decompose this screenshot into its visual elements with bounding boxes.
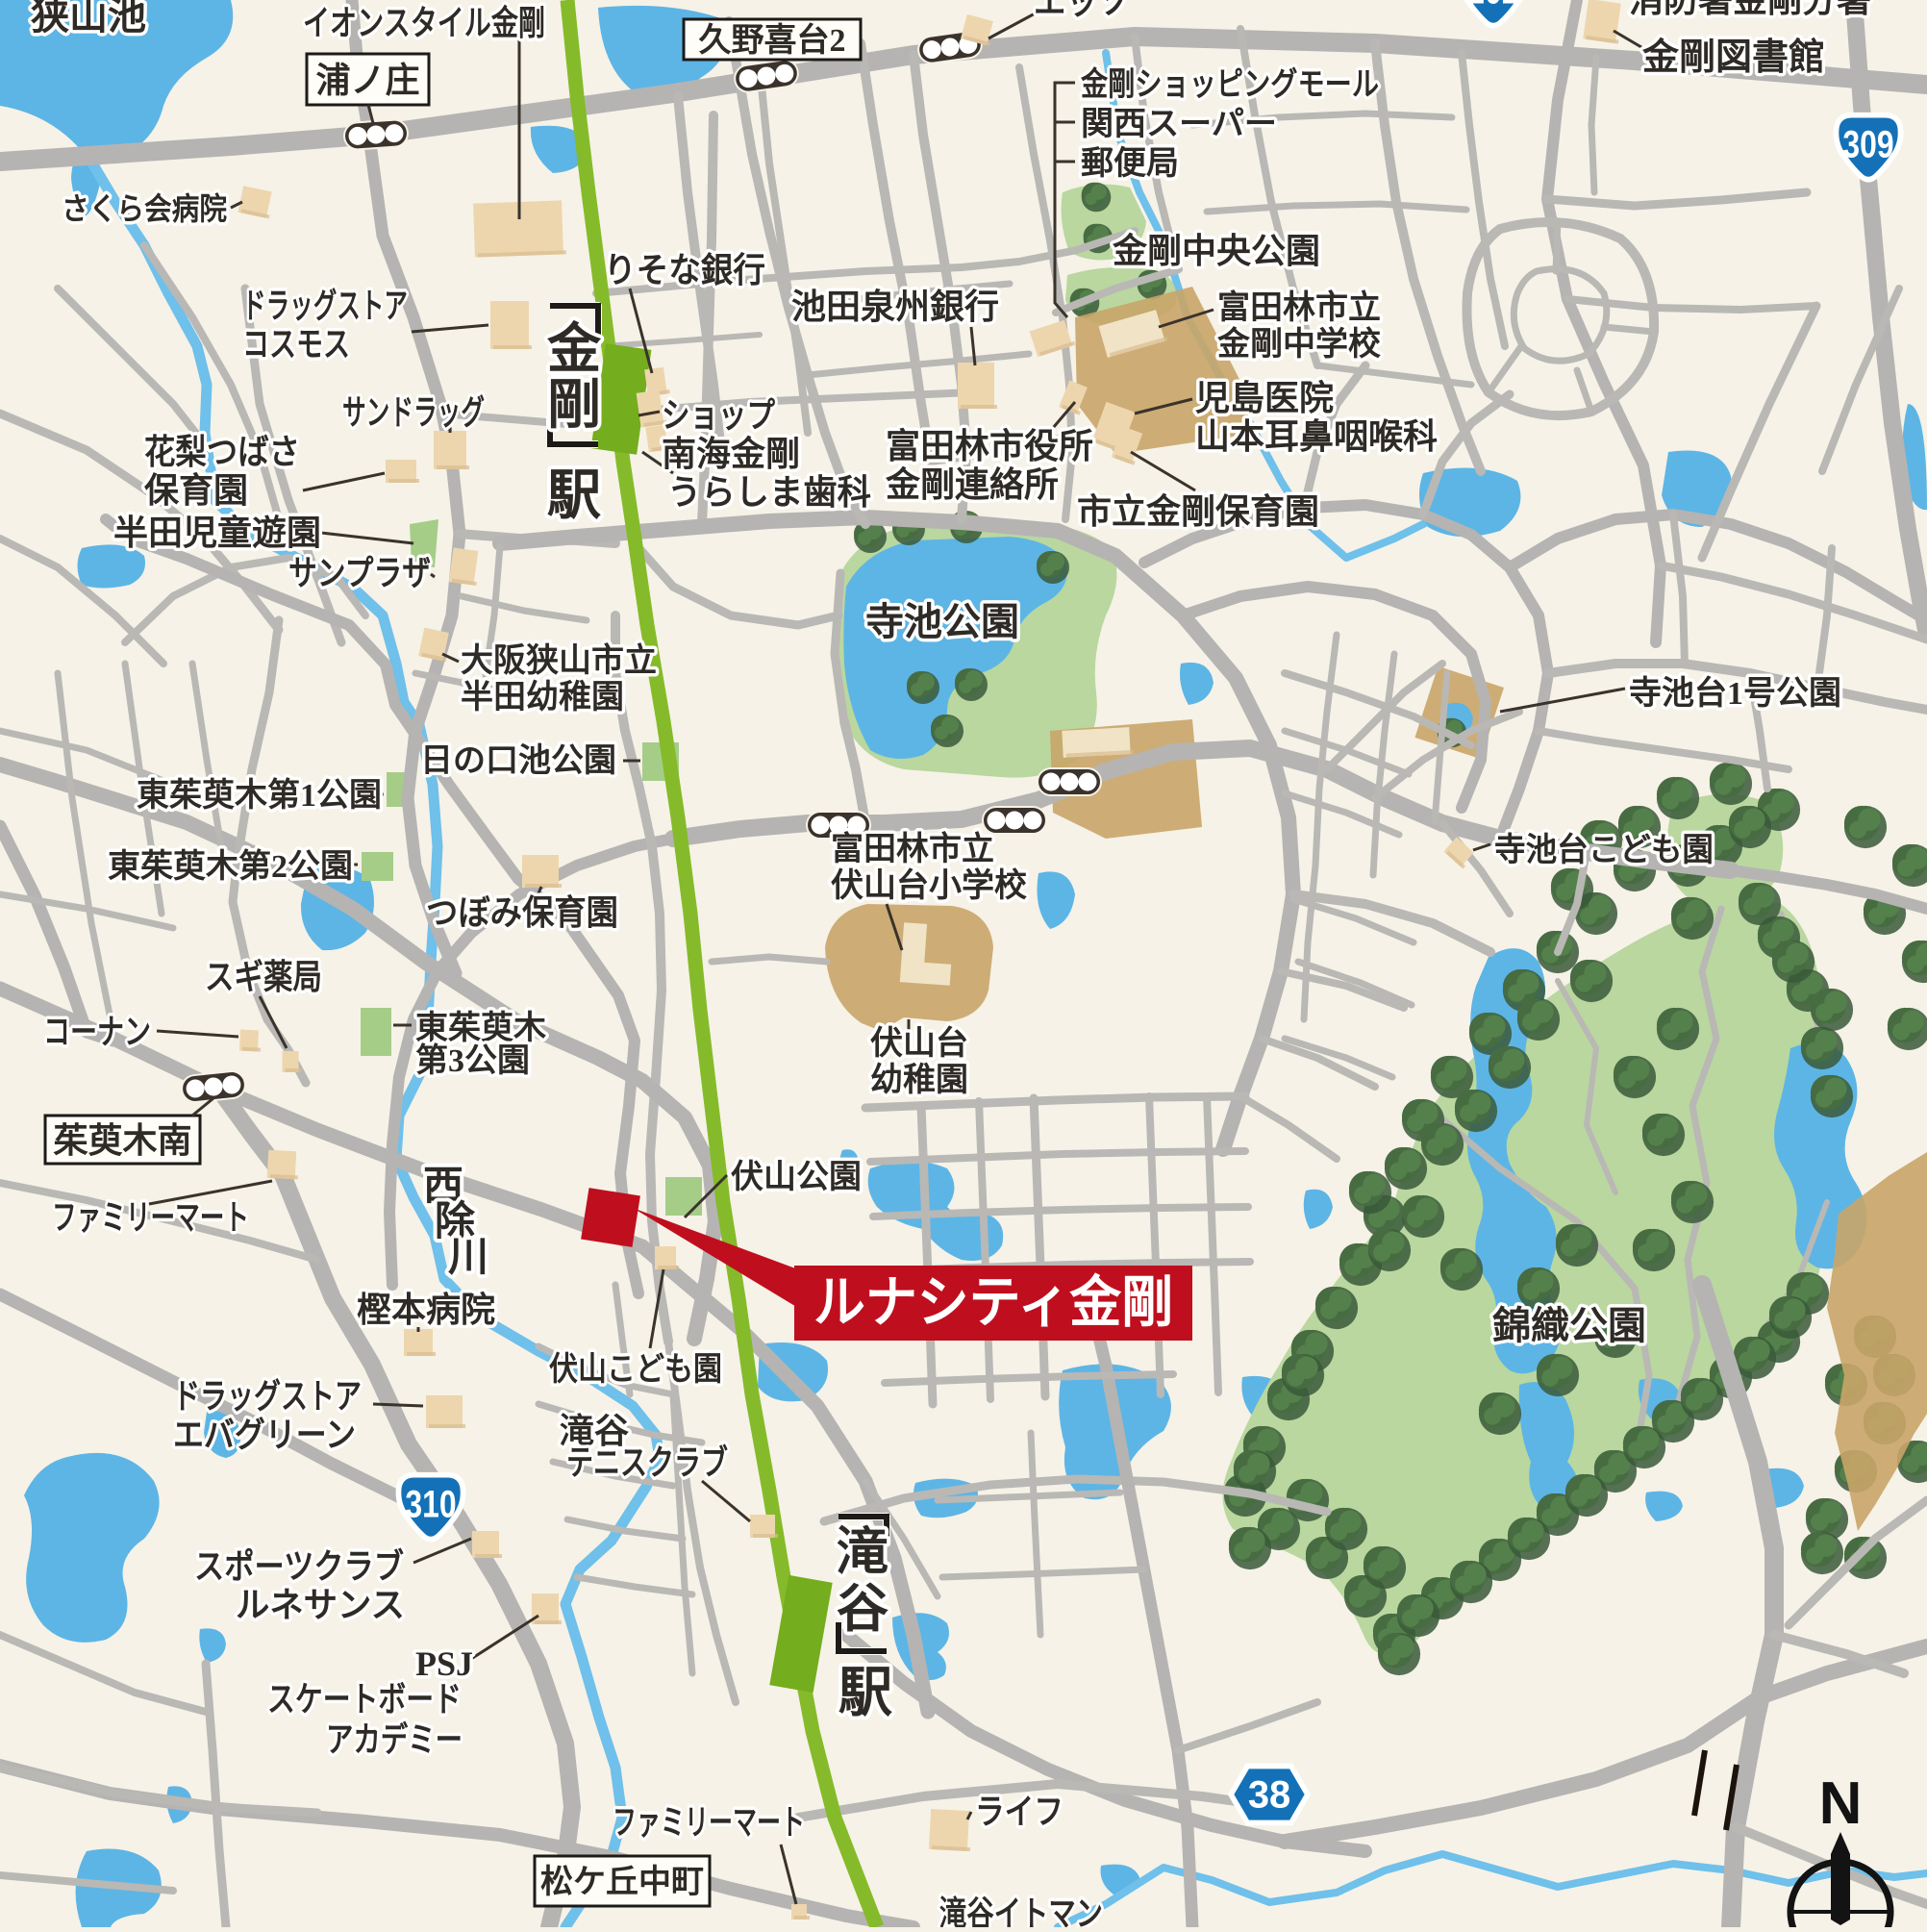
- svg-text:309: 309: [1842, 123, 1893, 165]
- svg-text:大阪狭山市立: 大阪狭山市立: [461, 641, 657, 679]
- svg-text:202: 202: [1467, 0, 1518, 12]
- svg-text:富田林市立: 富田林市立: [1217, 289, 1381, 326]
- svg-text:駅: 駅: [547, 466, 601, 526]
- svg-text:スポーツクラブ: スポーツクラブ: [194, 1546, 404, 1586]
- svg-text:伏山こども園: 伏山こども園: [549, 1351, 722, 1388]
- svg-text:錦織公園: 錦織公園: [1492, 1304, 1646, 1347]
- svg-text:金剛中央公園: 金剛中央公園: [1112, 231, 1320, 270]
- svg-text:伏山台小学校: 伏山台小学校: [831, 866, 1027, 904]
- svg-text:伏山台: 伏山台: [870, 1025, 968, 1062]
- svg-text:谷: 谷: [837, 1580, 888, 1638]
- svg-text:児島医院: 児島医院: [1195, 379, 1334, 417]
- svg-text:第3公園: 第3公園: [415, 1042, 530, 1079]
- svg-text:りそな銀行: りそな銀行: [604, 251, 765, 289]
- svg-text:樫本病院: 樫本病院: [357, 1291, 495, 1329]
- svg-text:茱萸木南: 茱萸木南: [53, 1121, 191, 1160]
- svg-text:久野喜台2: 久野喜台2: [699, 22, 846, 59]
- svg-text:テニスクラブ: テニスクラブ: [566, 1443, 728, 1482]
- svg-text:金: 金: [546, 320, 602, 380]
- svg-text:浦ノ庄: 浦ノ庄: [315, 61, 419, 99]
- svg-text:金剛図書館: 金剛図書館: [1641, 37, 1825, 78]
- svg-text:寺池公園: 寺池公園: [865, 600, 1019, 643]
- svg-text:花梨つばさ: 花梨つばさ: [144, 433, 300, 471]
- svg-text:コーナン: コーナン: [43, 1013, 151, 1051]
- svg-text:ドラッグストア: ドラッグストア: [242, 287, 408, 325]
- svg-text:エバグリーン: エバグリーン: [173, 1416, 356, 1454]
- svg-text:38: 38: [1248, 1773, 1290, 1816]
- svg-text:金剛ショッピングモール: 金剛ショッピングモール: [1080, 65, 1379, 103]
- svg-text:イオンスタイル金剛: イオンスタイル金剛: [303, 3, 545, 42]
- svg-text:サンドラッグ: サンドラッグ: [342, 393, 485, 432]
- svg-text:金剛連絡所: 金剛連絡所: [885, 464, 1059, 504]
- svg-text:駅: 駅: [838, 1664, 892, 1723]
- svg-text:滝: 滝: [837, 1523, 888, 1581]
- svg-text:N: N: [1819, 1770, 1863, 1837]
- svg-text:関西スーパー: 関西スーパー: [1081, 107, 1277, 142]
- svg-text:狭山池: 狭山池: [31, 0, 146, 38]
- svg-text:保育園: 保育園: [144, 471, 248, 510]
- svg-text:東茱萸木第1公園: 東茱萸木第1公園: [137, 777, 382, 814]
- svg-text:市立金剛保育園: 市立金剛保育園: [1077, 491, 1319, 531]
- svg-text:ライフ: ライフ: [975, 1793, 1064, 1831]
- svg-text:ファミリーマート: ファミリーマート: [52, 1198, 249, 1237]
- svg-text:寺池台こども園: 寺池台こども園: [1494, 832, 1714, 868]
- svg-text:松ケ丘中町: 松ケ丘中町: [540, 1864, 704, 1900]
- svg-text:消防署金剛分署: 消防署金剛分署: [1629, 0, 1871, 19]
- svg-text:310: 310: [405, 1483, 456, 1525]
- svg-text:寺池台1号公園: 寺池台1号公園: [1629, 675, 1841, 712]
- svg-text:ファミリーマート: ファミリーマート: [613, 1803, 805, 1842]
- svg-text:コスモス: コスモス: [242, 325, 350, 364]
- svg-text:スケートボード: スケートボード: [267, 1680, 462, 1719]
- svg-text:半田児童遊園: 半田児童遊園: [113, 513, 321, 552]
- svg-text:東茱萸木第2公園: 東茱萸木第2公園: [108, 848, 353, 885]
- svg-text:ドラッグストア: ドラッグストア: [173, 1377, 362, 1416]
- svg-text:ショップ: ショップ: [662, 396, 775, 435]
- svg-text:うらしま歯科: うらしま歯科: [667, 473, 871, 512]
- svg-text:さくら会病院: さくら会病院: [62, 191, 227, 226]
- svg-text:山本耳鼻咽喉科: 山本耳鼻咽喉科: [1195, 417, 1438, 456]
- svg-text:富田林市役所: 富田林市役所: [886, 426, 1093, 465]
- svg-text:伏山公園: 伏山公園: [731, 1159, 862, 1195]
- svg-text:剛: 剛: [547, 376, 601, 436]
- svg-text:半田幼稚園: 半田幼稚園: [461, 679, 624, 715]
- svg-text:ルネサンス: ルネサンス: [236, 1586, 405, 1624]
- svg-text:日の口池公園: 日の口池公園: [420, 742, 616, 779]
- svg-text:PSJ: PSJ: [415, 1644, 473, 1683]
- svg-text:川: 川: [448, 1236, 488, 1280]
- svg-text:スギ薬局: スギ薬局: [205, 958, 322, 996]
- svg-text:エッソ: エッソ: [1034, 0, 1130, 21]
- svg-text:幼稚園: 幼稚園: [870, 1062, 968, 1098]
- svg-text:富田林市立: 富田林市立: [831, 830, 994, 867]
- svg-text:サンプラザ: サンプラザ: [288, 554, 431, 592]
- svg-text:ルナシティ金剛: ルナシティ金剛: [813, 1271, 1173, 1334]
- svg-text:アカデミー: アカデミー: [326, 1719, 463, 1759]
- svg-text:金剛中学校: 金剛中学校: [1216, 325, 1381, 363]
- svg-text:滝谷イトマン: 滝谷イトマン: [939, 1894, 1103, 1927]
- svg-text:南海金剛: 南海金剛: [662, 434, 800, 473]
- svg-text:郵便局: 郵便局: [1081, 145, 1179, 182]
- svg-text:つぼみ保育園: つぼみ保育園: [426, 893, 618, 932]
- svg-text:東茱萸木: 東茱萸木: [415, 1010, 546, 1046]
- svg-text:池田泉州銀行: 池田泉州銀行: [791, 288, 999, 326]
